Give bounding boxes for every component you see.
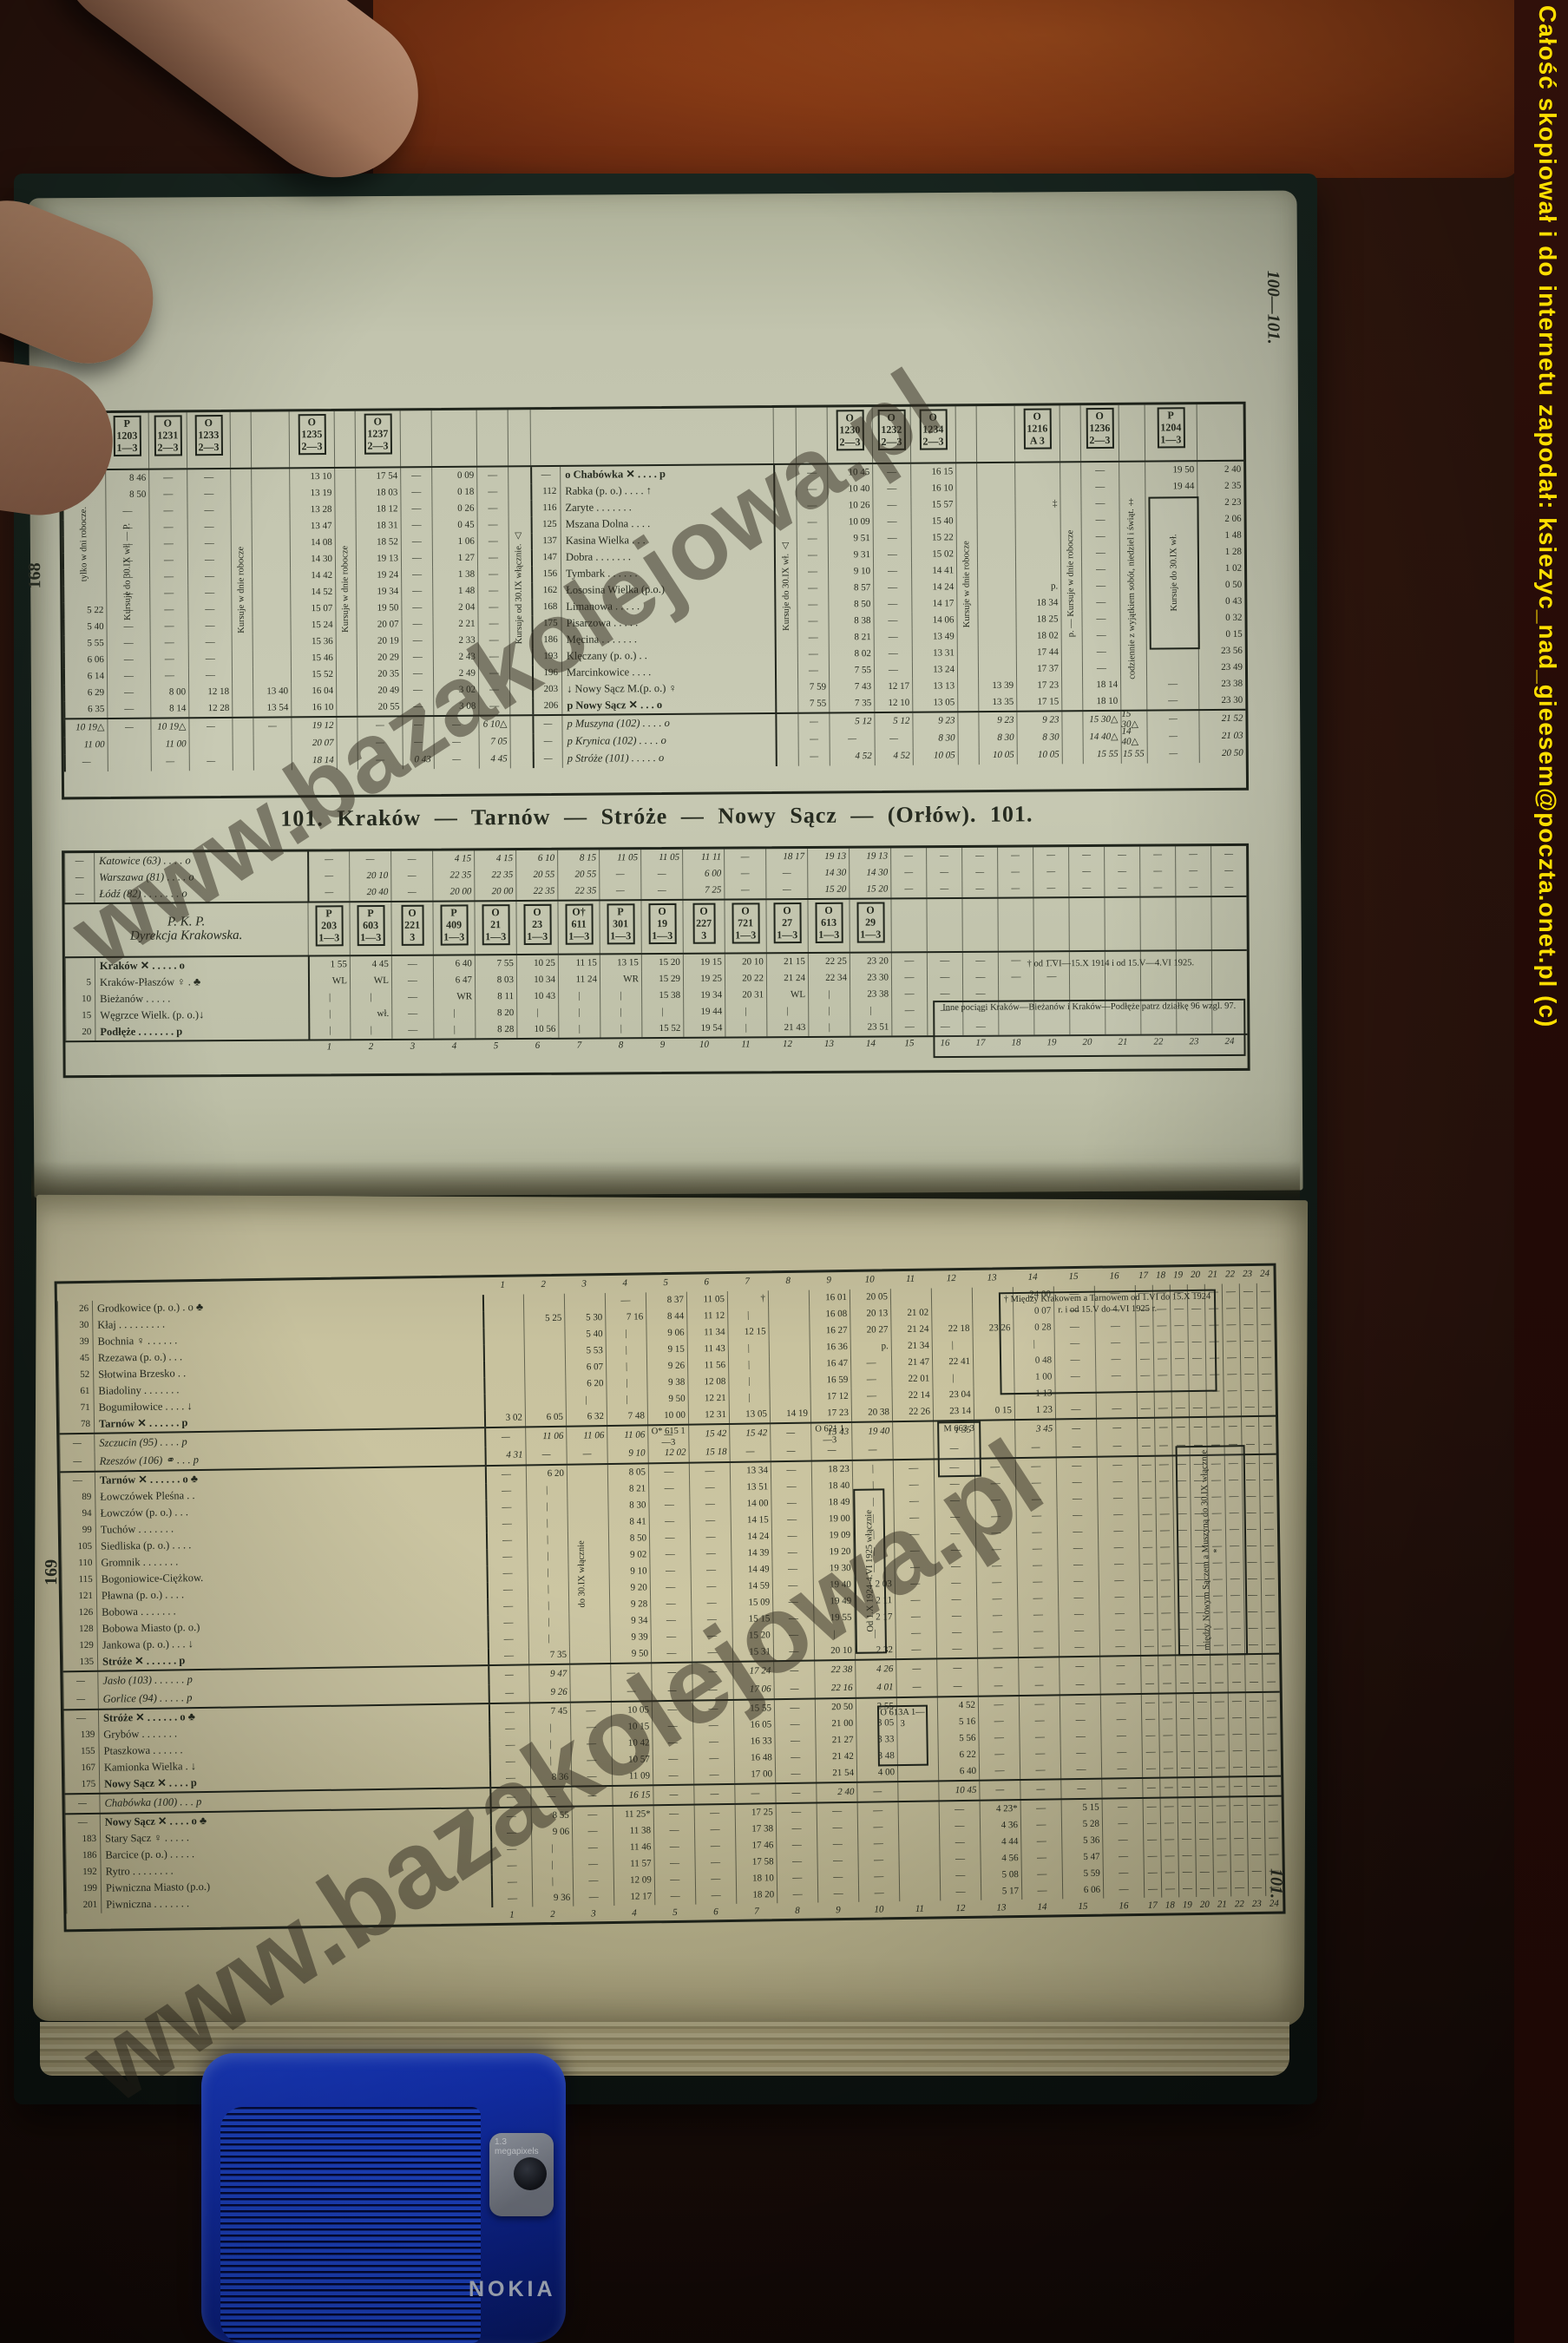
- time-cell: —: [477, 516, 508, 533]
- time-cell: —: [1098, 1523, 1138, 1540]
- time-cell: 105: [61, 1539, 95, 1556]
- time-cell: —: [774, 1700, 815, 1717]
- time-cell: —: [1060, 1696, 1100, 1713]
- time-cell: —: [1060, 1745, 1101, 1762]
- time-cell: 8 55: [531, 1808, 572, 1825]
- time-cell: —: [149, 519, 187, 535]
- time-cell: —: [935, 1526, 975, 1543]
- time-cell: —: [478, 698, 509, 714]
- time-cell: —: [1178, 1847, 1195, 1864]
- train-class: 1—3: [360, 932, 381, 944]
- time-cell: —: [961, 864, 997, 881]
- time-cell: 19 00: [812, 1511, 853, 1528]
- time-cell: 6 10△: [478, 716, 509, 733]
- time-cell: 16 08: [809, 1306, 850, 1323]
- time-cell: —: [1141, 1711, 1158, 1728]
- time-cell: 10 57: [612, 1751, 653, 1769]
- time-cell: —: [1100, 1728, 1141, 1745]
- time-cell: —: [694, 1821, 735, 1839]
- time-cell: 14 49: [731, 1561, 771, 1578]
- time-cell: 3 02: [433, 682, 478, 699]
- time-cell: [1146, 660, 1198, 676]
- time-cell: —: [401, 567, 432, 583]
- time-cell: 15: [65, 1007, 95, 1024]
- time-cell: —: [772, 1594, 813, 1611]
- time-cell: —: [1264, 1814, 1282, 1830]
- time-cell: —: [1177, 1743, 1194, 1760]
- time-cell: 168: [531, 599, 561, 615]
- time-cell: 13 05: [912, 694, 957, 711]
- time-cell: 8 00: [150, 684, 188, 700]
- time-cell: 71: [59, 1400, 94, 1417]
- train-header-cell: [1139, 897, 1175, 949]
- train-header-cell: [773, 408, 797, 463]
- time-cell: 10 09: [828, 514, 873, 530]
- time-cell: —: [974, 1492, 1015, 1509]
- time-cell: 15 52: [641, 1021, 683, 1037]
- time-cell: —: [1263, 1693, 1280, 1710]
- time-cell: —: [107, 701, 150, 718]
- train-number-box: P3011—3: [607, 903, 634, 945]
- time-cell: 10 00: [647, 1408, 688, 1425]
- time-cell: 22 18: [931, 1321, 972, 1338]
- time-cell: —: [1245, 1726, 1263, 1742]
- station-name: Kraków-Płaszów ♀ . ♣: [95, 974, 308, 992]
- time-cell: 20 10: [349, 868, 390, 884]
- station-name: p Stróże (101) . . . . . o: [562, 749, 776, 768]
- credit-text: Całość skopiował i do internetu zapodał:…: [1533, 5, 1561, 2340]
- train-class: 1—3: [318, 932, 339, 944]
- station-name: Łososina Wielka (p.o.): [561, 581, 774, 599]
- column-number: 16: [1103, 1898, 1144, 1916]
- time-cell: |: [526, 1499, 567, 1516]
- time-cell: —: [357, 717, 402, 734]
- column-number: 5: [646, 1275, 686, 1293]
- train-number: 19: [652, 918, 672, 930]
- time-cell: —: [1261, 1587, 1278, 1604]
- station-name: Węgrzce Wielk. (p. o.)↓: [95, 1007, 308, 1025]
- train-category: O: [696, 906, 712, 918]
- time-cell: [252, 584, 290, 601]
- time-cell: 78: [59, 1416, 94, 1434]
- time-cell: 18 31: [356, 517, 401, 534]
- time-cell: 20 55: [357, 699, 402, 715]
- time-cell: 199: [66, 1880, 101, 1898]
- time-cell: [898, 1818, 939, 1835]
- time-cell: 139: [63, 1727, 98, 1744]
- time-cell: 13 54: [253, 699, 291, 716]
- time-cell: [768, 1323, 809, 1341]
- time-cell: |: [558, 988, 600, 1004]
- time-cell: [898, 1834, 939, 1852]
- time-cell: —: [1099, 1572, 1139, 1590]
- time-cell: —: [1068, 863, 1104, 880]
- time-cell: 15 36: [291, 633, 336, 650]
- train-class: 1—3: [485, 931, 506, 943]
- time-cell: 17 38: [735, 1821, 776, 1838]
- time-cell: —: [1155, 1489, 1172, 1506]
- time-cell: —: [796, 498, 827, 515]
- column-number: 21: [1204, 1267, 1221, 1284]
- time-cell: 52: [58, 1367, 93, 1384]
- time-cell: [253, 650, 291, 666]
- time-cell: —: [694, 1854, 735, 1872]
- time-cell: 0 26: [431, 501, 476, 517]
- time-cell: 0 50: [1197, 577, 1244, 594]
- time-cell: 6 22: [938, 1747, 979, 1764]
- time-cell: 0 43: [403, 751, 434, 769]
- time-cell: 18 34: [1015, 594, 1060, 611]
- time-cell: —: [1020, 1833, 1061, 1850]
- time-cell: —: [1143, 1815, 1160, 1832]
- time-cell: 10 56: [516, 1021, 558, 1038]
- time-cell: —: [690, 1546, 731, 1563]
- column-number: 15: [891, 1037, 927, 1051]
- time-cell: 23 30: [1198, 692, 1245, 709]
- time-cell: —: [1176, 1727, 1193, 1743]
- time-cell: 15 20: [849, 881, 890, 897]
- time-cell: 23 49: [1198, 660, 1245, 676]
- block: —Stróże ✕ . . . . . . o ♣—7 45—10 05——15…: [63, 1691, 1282, 1814]
- time-cell: —: [187, 535, 231, 552]
- time-cell: —: [773, 1662, 814, 1681]
- station-name: p Nowy Sącz ✕ . . . o: [561, 696, 775, 714]
- train-category: O†: [568, 907, 589, 919]
- time-cell: —: [1055, 1401, 1096, 1419]
- time-cell: [770, 1389, 810, 1407]
- time-cell: —: [1230, 1863, 1248, 1880]
- train-class: A 3: [1027, 435, 1047, 447]
- time-cell: 20 35: [357, 666, 402, 682]
- time-cell: —: [148, 486, 187, 502]
- table-note: codziennie z wyjątkiem sobót, niedziel i…: [1119, 468, 1145, 709]
- time-cell: 0 15: [974, 1402, 1014, 1420]
- time-cell: —: [391, 973, 433, 989]
- time-cell: —: [477, 615, 508, 632]
- time-cell: 10 26: [827, 497, 872, 514]
- time-cell: —: [1154, 1418, 1171, 1436]
- time-cell: —: [1101, 1744, 1142, 1762]
- time-cell: 18 20: [736, 1887, 777, 1904]
- time-cell: —: [1160, 1831, 1178, 1847]
- time-cell: —: [1241, 1417, 1258, 1435]
- time-cell: —: [650, 1579, 691, 1597]
- column-number: 12: [931, 1270, 972, 1289]
- time-cell: —: [533, 751, 562, 768]
- time-cell: 19 50: [356, 600, 401, 616]
- time-cell: 20 50: [1199, 745, 1246, 763]
- time-cell: 10 05: [913, 747, 958, 765]
- time-cell: —: [1246, 1777, 1263, 1795]
- time-cell: —: [858, 1868, 899, 1886]
- time-cell: —: [689, 1463, 730, 1480]
- column-number: 3: [573, 1906, 613, 1924]
- time-cell: —: [1056, 1491, 1097, 1508]
- time-cell: —: [487, 1598, 528, 1615]
- time-cell: 15 20: [807, 882, 849, 898]
- time-cell: —: [1210, 1726, 1228, 1742]
- time-cell: —: [188, 634, 232, 651]
- time-cell: [1062, 729, 1083, 746]
- time-cell: —: [775, 1749, 816, 1767]
- time-cell: 4 15: [432, 850, 474, 867]
- time-cell: —: [1247, 1830, 1264, 1847]
- column-number: 11: [899, 1900, 940, 1919]
- time-cell: 13 35: [978, 694, 1016, 711]
- time-cell: —: [1102, 1799, 1143, 1816]
- time-cell: —: [875, 731, 913, 748]
- time-cell: [253, 666, 291, 683]
- time-cell: [233, 736, 253, 753]
- time-cell: 10 40: [827, 481, 872, 497]
- time-cell: 2 49: [433, 666, 478, 682]
- time-cell: —: [940, 1884, 981, 1901]
- time-cell: |: [433, 1005, 475, 1021]
- time-cell: 20 31: [725, 987, 766, 1003]
- time-cell: —: [486, 1532, 527, 1549]
- time-cell: |: [558, 1021, 600, 1037]
- time-cell: —: [894, 1559, 935, 1576]
- time-cell: |: [528, 1581, 568, 1598]
- time-cell: —: [1213, 1863, 1230, 1880]
- time-cell: —: [934, 1493, 974, 1510]
- time-cell: —: [1230, 1830, 1247, 1847]
- photo-scene: 168 100—101. O1215A 3P12031—3O12312—3O12…: [0, 0, 1568, 2343]
- time-cell: —: [1195, 1847, 1212, 1864]
- time-cell: —: [874, 629, 912, 646]
- column-number: 8: [768, 1273, 809, 1291]
- time-cell: 6 00: [682, 866, 724, 883]
- train-number-box: P6031—3: [357, 905, 384, 947]
- table-note: Kursuje od 30.IX włącznie. △: [508, 474, 530, 701]
- time-cell: —: [873, 613, 911, 629]
- time-cell: |: [605, 1325, 646, 1342]
- time-cell: —: [773, 1680, 814, 1699]
- time-cell: —: [489, 1736, 529, 1754]
- time-cell: 19 13: [356, 550, 401, 567]
- time-cell: —: [1146, 676, 1198, 692]
- table-note: Inne pociągi Kraków—Bieżanów i Kraków—Po…: [933, 999, 1245, 1058]
- time-cell: —: [777, 1887, 817, 1904]
- table-note: O 613A 1—3: [877, 1705, 928, 1767]
- train-number-box: O12362—3: [1086, 408, 1113, 450]
- time-cell: [253, 735, 292, 752]
- time-cell: 17 23: [810, 1405, 851, 1422]
- time-cell: 6 40: [433, 955, 475, 972]
- time-cell: —: [490, 1857, 531, 1874]
- time-cell: [768, 1290, 809, 1308]
- time-cell: —: [693, 1750, 734, 1768]
- time-cell: [768, 1307, 809, 1324]
- time-cell: 137: [531, 533, 561, 549]
- time-cell: —: [797, 548, 828, 564]
- time-cell: 4 52: [937, 1697, 978, 1715]
- train-number-box: O271—3: [773, 902, 801, 944]
- time-cell: 11 12: [686, 1308, 727, 1325]
- train-header-cell: [334, 411, 356, 467]
- table-note: Od 1.X 1924-4.VI 1925 włącznie: [853, 1488, 887, 1654]
- train-header-cell: O12372—3: [355, 410, 401, 466]
- time-cell: [569, 1664, 610, 1683]
- time-cell: —: [1260, 1505, 1277, 1521]
- time-cell: —: [977, 1677, 1018, 1696]
- time-cell: —: [400, 484, 431, 501]
- column-number: 11: [890, 1270, 931, 1289]
- time-cell: —: [1097, 1473, 1138, 1491]
- time-cell: 5 25: [523, 1310, 564, 1328]
- time-cell: [898, 1802, 939, 1819]
- time-cell: —: [402, 717, 433, 734]
- time-cell: —: [1020, 1745, 1060, 1762]
- time-cell: —: [1192, 1674, 1210, 1692]
- train-number-box: P4091—3: [440, 904, 468, 946]
- time-cell: —: [1229, 1777, 1246, 1795]
- time-cell: —: [978, 1713, 1019, 1730]
- time-cell: 19 34: [683, 988, 725, 1004]
- time-cell: —: [1193, 1727, 1210, 1743]
- time-cell: 10 19△: [63, 719, 107, 737]
- time-cell: 5: [65, 975, 95, 991]
- time-cell: 8 30: [913, 730, 958, 747]
- time-cell: 8 05: [607, 1464, 648, 1481]
- time-cell: —: [1263, 1726, 1280, 1742]
- time-cell: 19 44: [1145, 478, 1197, 495]
- train-header-cell: [1068, 898, 1104, 950]
- time-cell: —: [1229, 1742, 1246, 1759]
- time-cell: —: [691, 1578, 732, 1596]
- time-cell: —: [107, 652, 150, 668]
- time-cell: [510, 733, 533, 751]
- time-cell: —: [693, 1785, 734, 1804]
- column-number: 6: [686, 1274, 727, 1292]
- time-cell: [189, 736, 233, 753]
- time-cell: p.: [850, 1338, 891, 1355]
- train-number: 409: [443, 919, 464, 931]
- time-cell: —: [434, 751, 479, 769]
- train-category: O: [777, 905, 797, 917]
- time-cell: 7 55: [475, 955, 516, 972]
- time-cell: 17 46: [735, 1837, 776, 1854]
- time-cell: —: [187, 469, 230, 486]
- spacer: [65, 1041, 308, 1057]
- train-number: 613: [818, 917, 839, 929]
- time-cell: —: [149, 618, 187, 634]
- train-class: 1—3: [818, 929, 839, 941]
- time-cell: —: [1257, 1349, 1275, 1366]
- time-cell: —: [1147, 745, 1199, 763]
- train-number-box: O12302—3: [836, 410, 863, 451]
- time-cell: —: [979, 1762, 1020, 1780]
- time-cell: |: [852, 1460, 893, 1478]
- time-cell: —: [1140, 1657, 1158, 1675]
- time-cell: —: [490, 1841, 531, 1858]
- column-number: 19: [1178, 1897, 1196, 1914]
- time-cell: [976, 480, 1014, 496]
- train-header-cell: P2031—3: [307, 902, 349, 955]
- train-number: 227: [696, 917, 712, 929]
- time-cell: [978, 645, 1016, 661]
- time-cell: 5 12: [829, 713, 874, 731]
- time-cell: —: [890, 848, 926, 864]
- time-cell: 9 28: [609, 1596, 650, 1613]
- time-cell: —: [64, 870, 94, 886]
- time-cell: —: [1097, 1490, 1138, 1507]
- time-cell: —: [477, 533, 508, 549]
- station-name: Limanowa . . . . .: [561, 597, 774, 615]
- time-cell: —: [651, 1645, 692, 1663]
- page-top: 168 100—101. O1215A 3P12031—3O12312—3O12…: [28, 191, 1302, 1198]
- time-cell: 13 40: [253, 683, 291, 699]
- time-cell: |: [350, 1022, 391, 1039]
- block: —Nowy Sącz ✕ . . . . o ♣—8 55—11 25*——17…: [65, 1795, 1283, 1914]
- train-number: 203: [318, 920, 339, 932]
- train-class: 1—3: [652, 930, 672, 942]
- time-cell: —: [1265, 1863, 1283, 1880]
- time-cell: —: [893, 1476, 934, 1493]
- time-cell: 17 37: [1016, 660, 1061, 677]
- time-cell: |: [516, 1005, 558, 1021]
- station-name: Pisarzowa . . . . .: [561, 614, 774, 632]
- time-cell: —: [489, 1788, 530, 1807]
- train-number-box: O1216A 3: [1023, 408, 1051, 450]
- time-cell: [252, 568, 290, 584]
- time-cell: 16 59: [810, 1372, 850, 1389]
- time-cell: —: [1137, 1437, 1154, 1455]
- time-cell: 10 45: [827, 464, 872, 481]
- time-cell: —: [187, 486, 230, 502]
- time-cell: —: [1103, 1881, 1144, 1899]
- time-cell: 14 30: [849, 864, 890, 881]
- header-gap: [530, 408, 773, 465]
- station-name: Tymbark . . . . . .: [561, 564, 774, 582]
- time-cell: 1 48: [1197, 528, 1244, 544]
- time-cell: 11 24: [558, 971, 600, 988]
- time-cell: —: [796, 482, 827, 498]
- time-cell: |: [433, 1021, 475, 1038]
- time-cell: 15 46: [291, 650, 336, 666]
- time-cell: —: [1033, 847, 1068, 863]
- time-cell: 23 30: [850, 969, 891, 986]
- time-cell: 8 36: [530, 1769, 571, 1787]
- time-cell: —: [765, 865, 807, 882]
- time-cell: 20 00: [474, 883, 515, 900]
- time-cell: —: [650, 1612, 691, 1630]
- time-cell: 18 17: [765, 849, 807, 865]
- time-cell: —: [935, 1559, 975, 1576]
- time-cell: 15 42: [729, 1424, 770, 1443]
- time-cell: —: [694, 1838, 735, 1855]
- time-cell: —: [1015, 1474, 1056, 1492]
- time-cell: [253, 633, 291, 650]
- column-number: 20: [1196, 1897, 1213, 1914]
- time-cell: —: [1257, 1366, 1275, 1382]
- time-cell: 18 02: [1016, 627, 1061, 644]
- time-cell: —: [478, 632, 509, 648]
- time-cell: 4 15: [474, 850, 515, 867]
- time-cell: —: [599, 866, 640, 883]
- time-cell: —: [486, 1515, 527, 1532]
- train-header-cell: O231—3: [515, 902, 557, 954]
- time-cell: —: [692, 1701, 733, 1718]
- train-header-cell: O291—3: [849, 899, 890, 951]
- time-cell: 6 47: [433, 972, 475, 988]
- time-cell: —: [891, 1019, 927, 1035]
- time-cell: —: [690, 1529, 731, 1546]
- time-cell: 14 19: [770, 1406, 810, 1423]
- time-cell: 6 05: [525, 1409, 566, 1427]
- time-cell: 8 57: [828, 580, 873, 596]
- time-cell: 6 06: [63, 652, 107, 668]
